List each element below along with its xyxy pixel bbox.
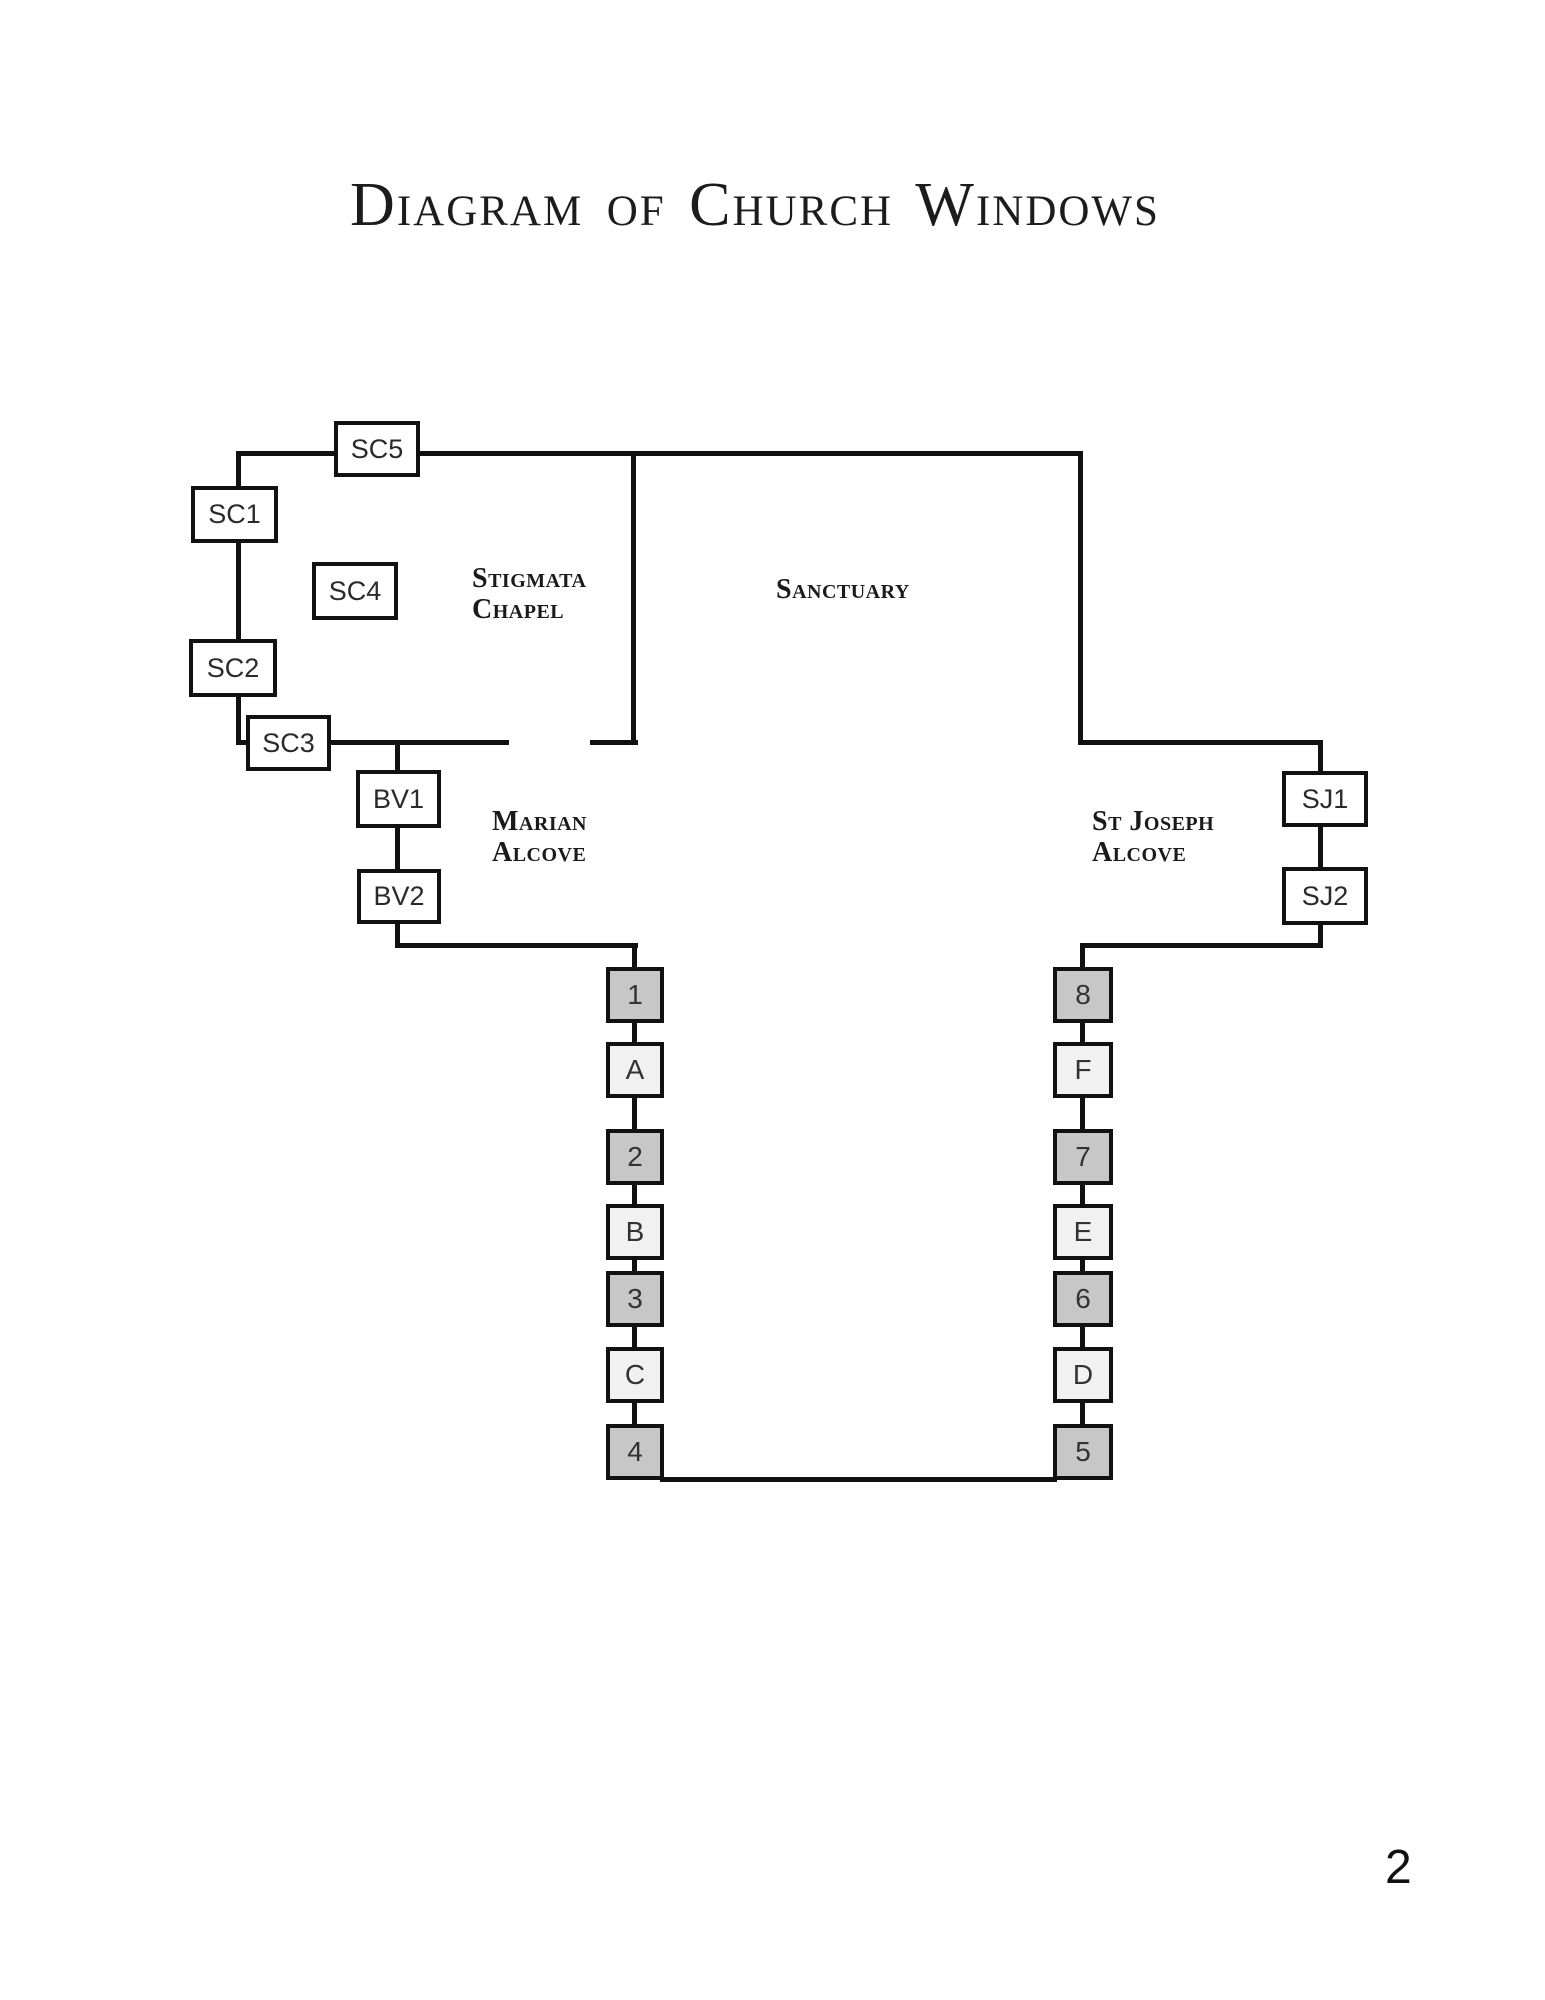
nave-window-label: F xyxy=(1074,1054,1091,1086)
window-label-bv2: BV2 xyxy=(373,881,424,912)
stigmata-chapel-label-line1: Stigmata xyxy=(472,563,586,594)
wall-nave-bottom xyxy=(660,1477,1057,1482)
nave-window-label: 6 xyxy=(1075,1283,1091,1315)
wall-left-nave-connector xyxy=(632,1096,637,1132)
nave-window-1: 1 xyxy=(606,967,664,1023)
sanctuary-label: Sanctuary xyxy=(776,574,910,605)
document-page: Diagram of Church Windows SC5 SC1 SC4 SC… xyxy=(0,0,1545,2000)
nave-window-3: 3 xyxy=(606,1271,664,1327)
window-label-bv1: BV1 xyxy=(373,784,424,815)
nave-window-label: 2 xyxy=(627,1141,643,1173)
stigmata-chapel-label: Stigmata Chapel xyxy=(472,563,586,625)
page-number: 2 xyxy=(1385,1840,1412,1895)
nave-window-label: 5 xyxy=(1075,1436,1091,1468)
nave-window-label: B xyxy=(626,1216,645,1248)
nave-window-label: 8 xyxy=(1075,979,1091,1011)
window-box-sj1: SJ1 xyxy=(1282,771,1368,827)
nave-window-e: E xyxy=(1053,1204,1113,1260)
wall-sj1-to-sj2 xyxy=(1318,825,1323,870)
wall-corner-to-sc1 xyxy=(236,451,241,489)
wall-left-alcove-floor xyxy=(395,943,638,948)
window-box-sc2: SC2 xyxy=(189,639,277,697)
nave-window-2: 2 xyxy=(606,1129,664,1185)
window-label-sc3: SC3 xyxy=(262,728,315,759)
nave-window-label: 3 xyxy=(627,1283,643,1315)
st-joseph-alcove-label: St Joseph Alcove xyxy=(1092,806,1214,868)
wall-to-sj1 xyxy=(1318,740,1323,773)
wall-right-nave-connector xyxy=(1080,1096,1085,1132)
window-label-sc4: SC4 xyxy=(329,576,382,607)
nave-window-c: C xyxy=(606,1347,664,1403)
wall-top-left xyxy=(236,451,336,456)
wall-to-bv1 xyxy=(395,740,400,773)
window-label-sj1: SJ1 xyxy=(1302,784,1349,815)
st-joseph-alcove-label-line1: St Joseph xyxy=(1092,806,1214,837)
wall-chapel-sanctuary-divider xyxy=(631,451,636,745)
nave-window-6: 6 xyxy=(1053,1271,1113,1327)
wall-sc2-down xyxy=(236,695,241,745)
wall-right-alcove-floor xyxy=(1080,943,1323,948)
wall-right-transept-top xyxy=(1080,740,1323,745)
nave-window-8: 8 xyxy=(1053,967,1113,1023)
window-box-bv2: BV2 xyxy=(357,869,441,924)
marian-alcove-label-line2: Alcove xyxy=(492,837,587,868)
nave-window-7: 7 xyxy=(1053,1129,1113,1185)
nave-window-label: A xyxy=(626,1054,645,1086)
nave-window-label: C xyxy=(625,1359,645,1391)
nave-window-5: 5 xyxy=(1053,1424,1113,1480)
window-label-sc5: SC5 xyxy=(351,434,404,465)
nave-window-label: 1 xyxy=(627,979,643,1011)
window-box-sc1: SC1 xyxy=(191,486,278,543)
window-box-sc5: SC5 xyxy=(334,421,420,477)
sanctuary-label-text: Sanctuary xyxy=(776,574,910,605)
stigmata-chapel-label-line2: Chapel xyxy=(472,594,586,625)
window-box-bv1: BV1 xyxy=(356,770,441,828)
wall-sc1-to-sc2 xyxy=(236,541,241,641)
page-title: Diagram of Church Windows xyxy=(0,170,1510,241)
window-label-sj2: SJ2 xyxy=(1302,881,1349,912)
nave-window-4: 4 xyxy=(606,1424,664,1480)
nave-window-b: B xyxy=(606,1204,664,1260)
nave-window-a: A xyxy=(606,1042,664,1098)
window-label-sc1: SC1 xyxy=(208,499,261,530)
nave-window-label: D xyxy=(1073,1359,1093,1391)
st-joseph-alcove-label-line2: Alcove xyxy=(1092,837,1214,868)
wall-top-right xyxy=(420,451,1083,456)
wall-to-window1 xyxy=(632,946,637,969)
nave-window-label: 7 xyxy=(1075,1141,1091,1173)
nave-window-d: D xyxy=(1053,1347,1113,1403)
wall-to-window8 xyxy=(1080,946,1085,969)
nave-window-label: 4 xyxy=(627,1436,643,1468)
wall-chapel-south-left xyxy=(329,740,509,745)
window-box-sc4: SC4 xyxy=(312,562,398,620)
window-label-sc2: SC2 xyxy=(207,653,260,684)
wall-bv1-to-bv2 xyxy=(395,826,400,871)
window-box-sj2: SJ2 xyxy=(1282,867,1368,925)
marian-alcove-label-line1: Marian xyxy=(492,806,587,837)
window-box-sc3: SC3 xyxy=(246,715,331,771)
nave-window-f: F xyxy=(1053,1042,1113,1098)
marian-alcove-label: Marian Alcove xyxy=(492,806,587,868)
nave-window-label: E xyxy=(1074,1216,1093,1248)
wall-sanctuary-right xyxy=(1078,451,1083,745)
